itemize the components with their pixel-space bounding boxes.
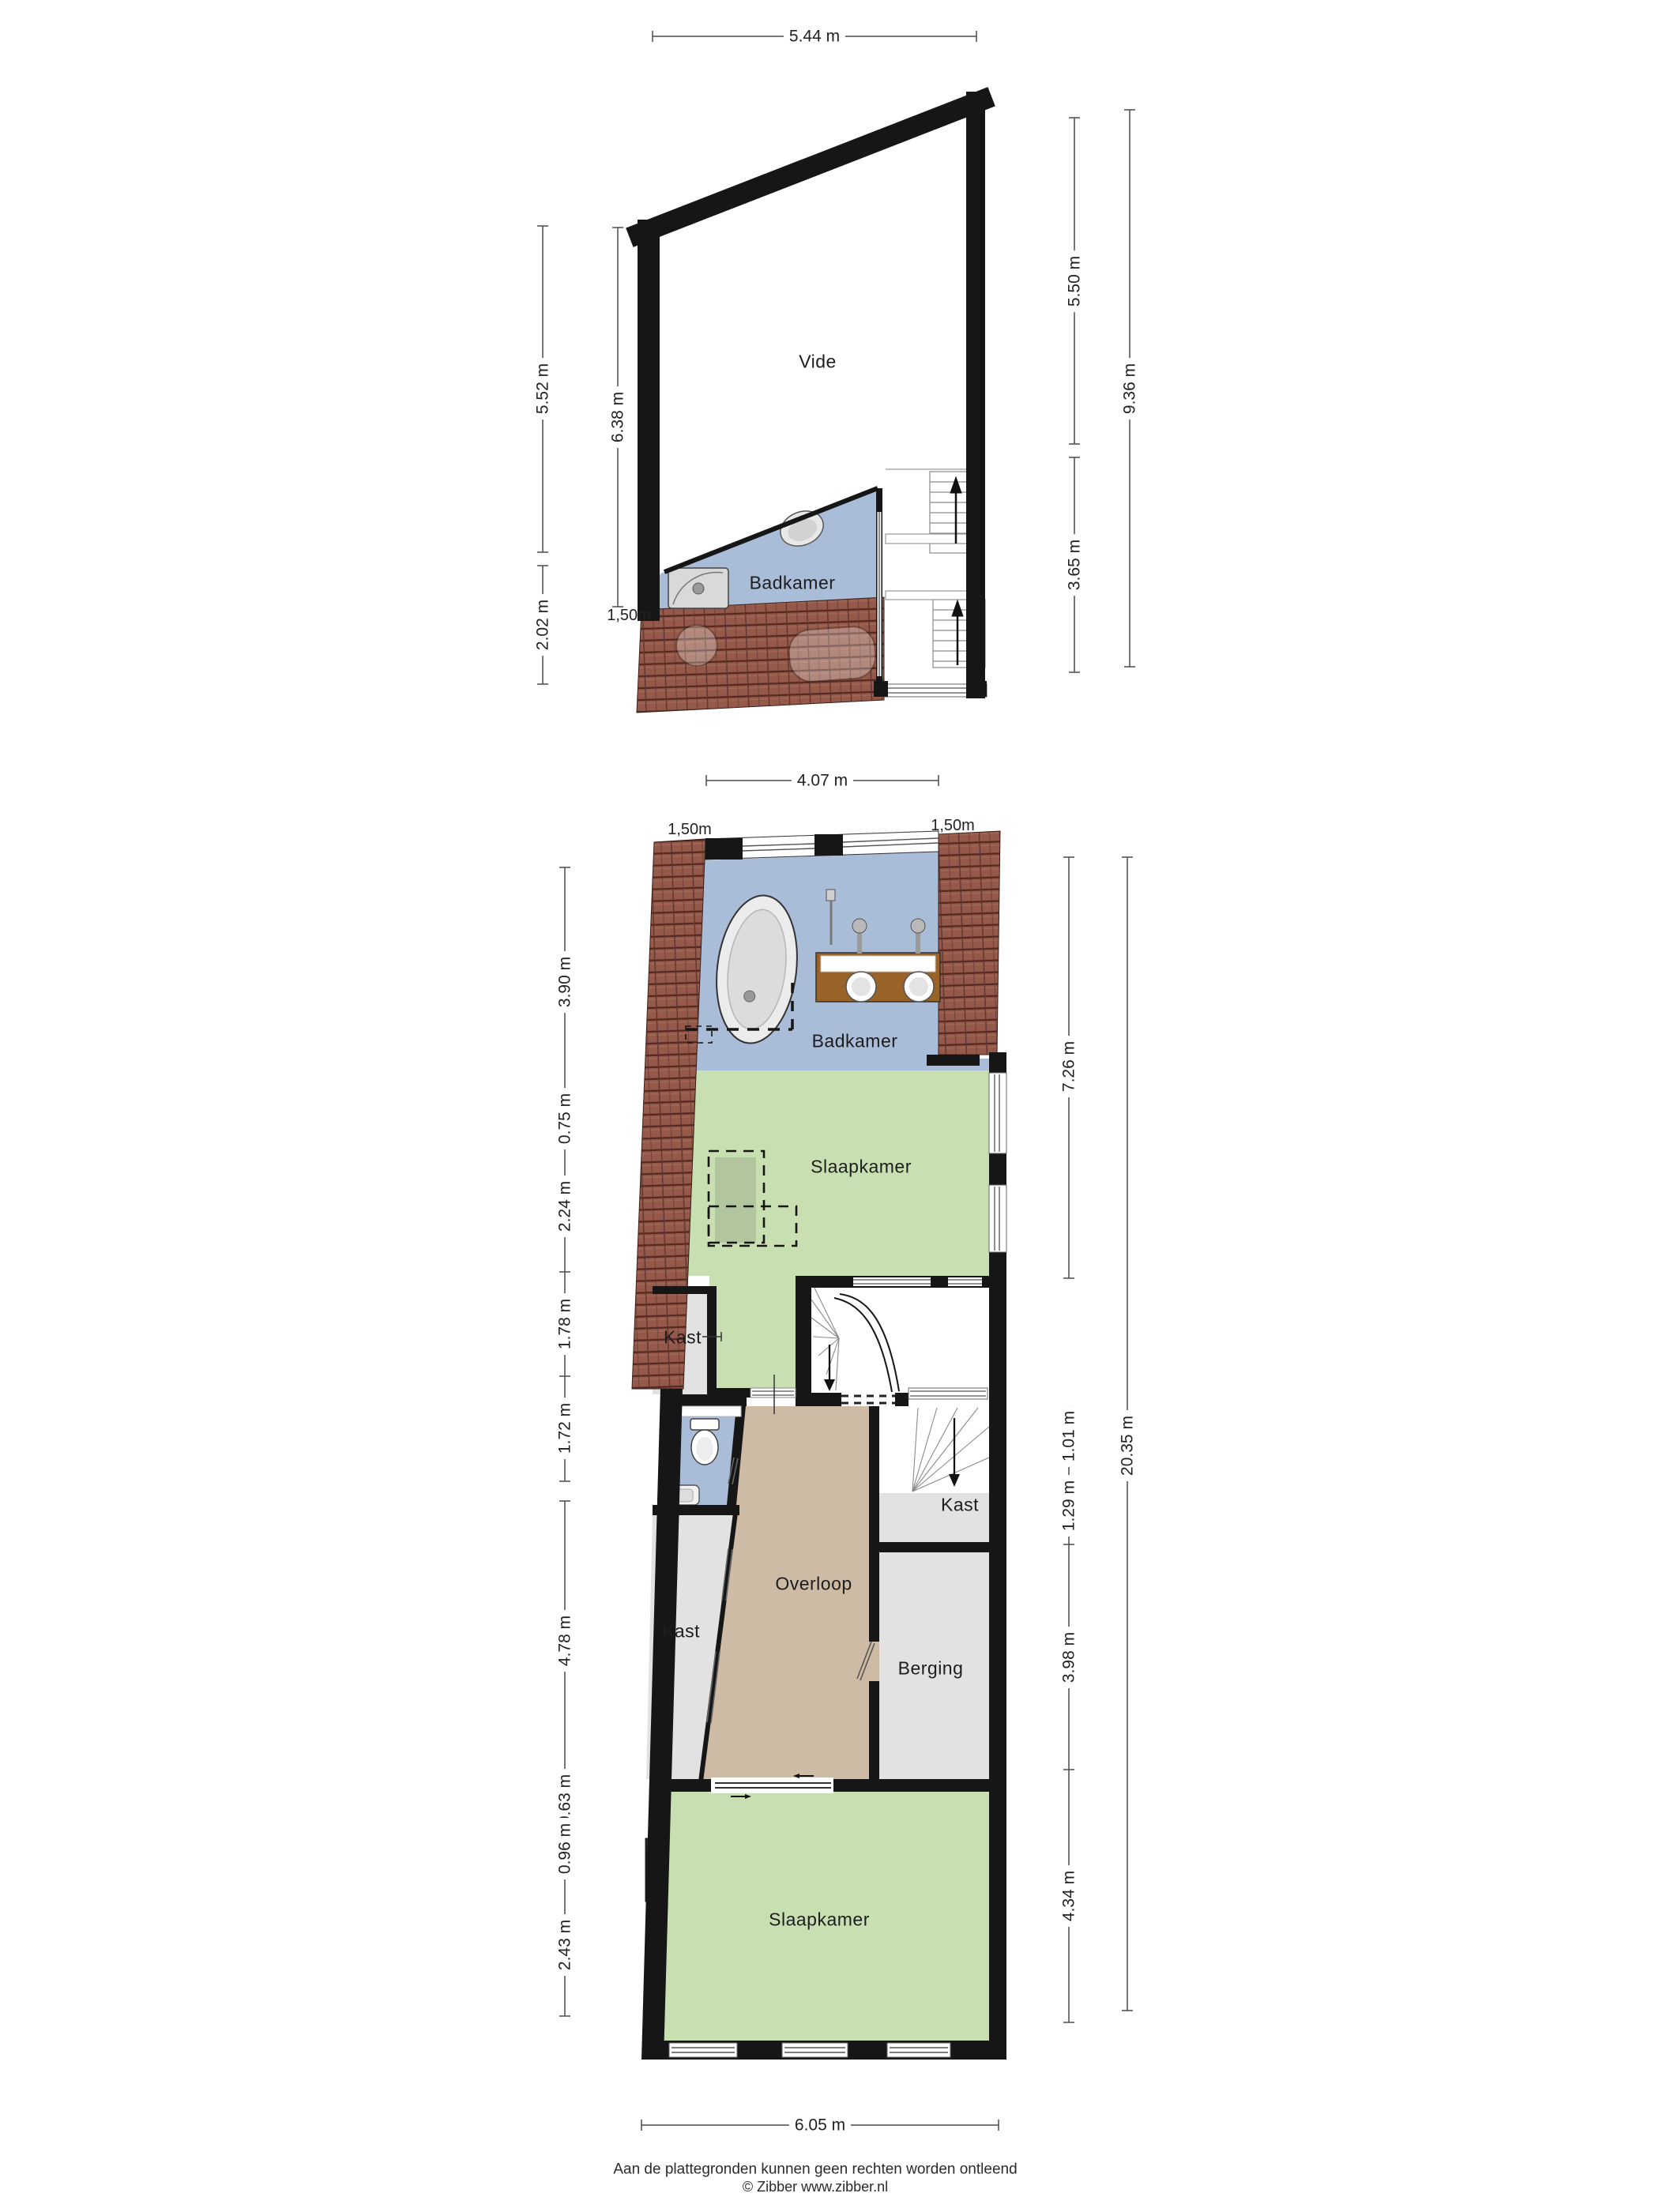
dim-plan2-headroom-left: 1,50m bbox=[668, 822, 712, 837]
room-label-berging: Berging bbox=[898, 1660, 964, 1678]
room-label-kast-rechts: Kast bbox=[941, 1496, 979, 1514]
floorplan-page: Vide Badkamer 5.44 m 5.52 m 6.38 m 2.02 … bbox=[0, 0, 1659, 2212]
dim-plan2-left-2: 2.24 m bbox=[556, 1176, 574, 1237]
room-label-kast-links-boven: Kast bbox=[664, 1329, 702, 1347]
dim-plan1-right-b: 3.65 m bbox=[1066, 534, 1084, 596]
dim-plan2-left-5: 4.78 m bbox=[556, 1610, 574, 1672]
dim-plan1-left-b: 6.38 m bbox=[609, 386, 627, 448]
dim-plan1-left-a: 5.52 m bbox=[534, 358, 552, 419]
toilet-wc bbox=[690, 1419, 719, 1465]
window-post-middle bbox=[814, 834, 843, 856]
dim-plan2-left-0: 3.90 m bbox=[556, 951, 574, 1013]
stairs-down-floor bbox=[879, 1406, 989, 1493]
plan1-attic bbox=[637, 100, 987, 713]
bottom-wall-windows bbox=[669, 2043, 950, 2057]
attic-shower bbox=[668, 568, 728, 608]
dim-plan2-left-4: 1.72 m bbox=[556, 1398, 574, 1459]
dim-plan2-left-1: 0.75 m bbox=[556, 1088, 574, 1149]
floorplan-drawing bbox=[0, 0, 1659, 2212]
dim-plan2-right-2: 1.29 m bbox=[1060, 1475, 1078, 1537]
dim-plan2-top: 4.07 m bbox=[792, 772, 853, 790]
room-label-overloop: Overloop bbox=[775, 1575, 852, 1593]
room-label-kast-links-onder: Kast bbox=[662, 1623, 700, 1641]
room-label-badkamer: Badkamer bbox=[812, 1033, 898, 1051]
dim-plan2-bottom: 6.05 m bbox=[789, 2116, 851, 2135]
dim-plan1-right-total: 9.36 m bbox=[1121, 358, 1139, 419]
window-post-left bbox=[705, 838, 743, 860]
room-label-slaapkamer-1: Slaapkamer bbox=[811, 1158, 912, 1176]
room-label-attic-badkamer: Badkamer bbox=[750, 574, 836, 592]
dim-plan2-right-total: 20.35 m bbox=[1119, 1410, 1137, 1481]
room-label-slaapkamer-2: Slaapkamer bbox=[769, 1911, 870, 1929]
dim-plan2-headroom-right: 1,50m bbox=[931, 818, 975, 833]
dim-plan2-left-3: 1.78 m bbox=[556, 1293, 574, 1355]
slaapkamer1-strip-floor bbox=[709, 1276, 796, 1394]
stairwell-glazed-wall bbox=[853, 1277, 982, 1286]
plan2-first-floor bbox=[632, 831, 1006, 2060]
footer-copyright: © Zibber www.zibber.nl bbox=[743, 2180, 888, 2194]
footer-disclaimer: Aan de plattegronden kunnen geen rechten… bbox=[613, 2162, 1017, 2177]
dim-plan1-left-c: 2.02 m bbox=[534, 594, 552, 656]
dim-plan1-right-a: 5.50 m bbox=[1066, 250, 1084, 312]
dim-plan2-left-8: 2.43 m bbox=[556, 1914, 574, 1976]
dim-plan1-headroom: 1,50m bbox=[607, 608, 651, 623]
stairwell-floor bbox=[796, 1288, 989, 1393]
dim-plan2-right-1: 1.01 m bbox=[1060, 1405, 1078, 1467]
dim-plan2-left-7: 0.96 m bbox=[556, 1818, 574, 1879]
dim-plan1-top: 5.44 m bbox=[784, 28, 845, 46]
roof-tiles-right bbox=[939, 831, 1000, 1055]
room-label-vide: Vide bbox=[799, 353, 837, 371]
dim-plan2-right-0: 7.26 m bbox=[1060, 1036, 1078, 1097]
dim-plan2-right-3: 3.98 m bbox=[1060, 1627, 1078, 1688]
dim-plan2-right-4: 4.34 m bbox=[1060, 1865, 1078, 1927]
